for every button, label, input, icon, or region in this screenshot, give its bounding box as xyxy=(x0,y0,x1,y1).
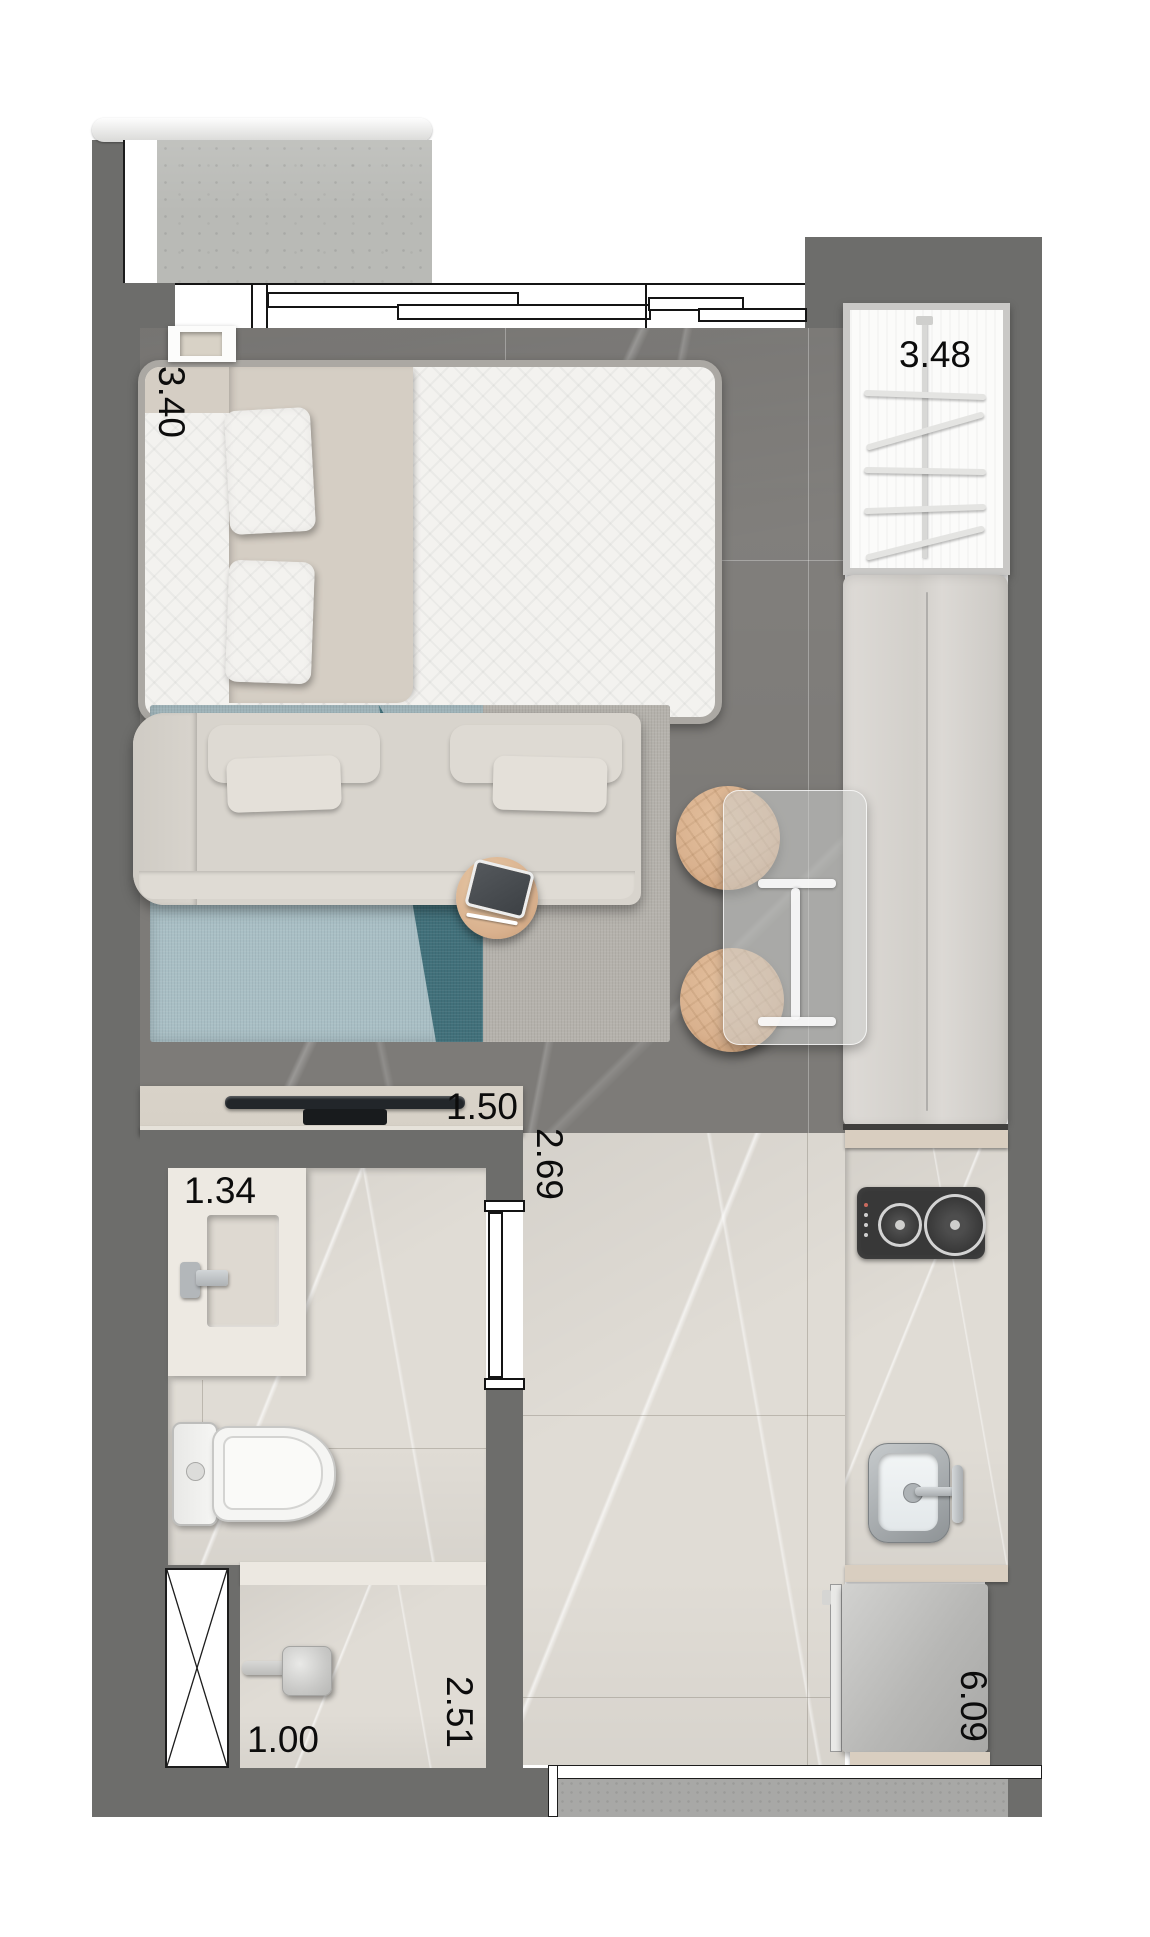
tv-stand xyxy=(303,1109,387,1125)
wall-living-bath xyxy=(140,1130,523,1168)
wall-top-left-stub xyxy=(92,283,175,328)
wardrobe-rail-clip xyxy=(916,316,933,325)
dimension-label-vanity-width: 1.34 xyxy=(184,1172,256,1209)
table-leg-stem xyxy=(791,888,800,1020)
window-band xyxy=(175,283,805,332)
dimension-label-hall-width: 2.69 xyxy=(531,1128,568,1200)
entry-lintel xyxy=(548,1765,1042,1779)
wall-right xyxy=(1008,237,1042,1817)
bench xyxy=(843,575,1008,1128)
tv xyxy=(225,1096,465,1109)
burner-large xyxy=(924,1194,986,1256)
sink-faucet-handle xyxy=(952,1465,963,1523)
cooktop-control-dot xyxy=(864,1233,868,1237)
sofa-front-edge xyxy=(139,871,635,899)
floor-plan: 3.40 3.48 1.50 2.69 1.34 1.00 2.51 6.09 xyxy=(0,0,1150,1937)
balcony-floor xyxy=(157,140,432,285)
hall-seam xyxy=(807,1133,808,1765)
pocket-door-panel xyxy=(488,1212,503,1378)
window-jamb xyxy=(251,285,268,330)
balcony-side-wall xyxy=(92,140,123,285)
window-sliding-panel xyxy=(397,304,651,320)
bed xyxy=(138,360,722,724)
window-divider xyxy=(645,285,647,330)
sofa-lumbar-pillow xyxy=(492,756,607,813)
dimension-label-tv-wall-width: 1.50 xyxy=(446,1088,518,1125)
wall-bath-left-fill xyxy=(140,1168,168,1768)
table-leg-bar xyxy=(758,879,836,888)
door-jamb xyxy=(484,1378,525,1390)
entry-jamb xyxy=(548,1765,558,1817)
burner-small xyxy=(878,1203,922,1247)
window-sliding-panel xyxy=(698,308,807,322)
bathroom-seam xyxy=(327,1448,486,1449)
shaft xyxy=(165,1568,229,1768)
glass-dining-table xyxy=(723,790,867,1045)
shower-head xyxy=(282,1646,332,1696)
dimension-label-bedroom-width: 3.40 xyxy=(153,366,190,438)
dimension-label-wardrobe-width: 3.48 xyxy=(899,336,971,373)
dimension-label-shower-width: 1.00 xyxy=(247,1721,319,1758)
counter-edge-bottom xyxy=(850,1752,990,1765)
fridge-door-edge xyxy=(830,1584,842,1752)
hanger xyxy=(864,467,986,475)
cooktop-control-dot xyxy=(864,1223,868,1227)
counter-edge-mid xyxy=(845,1565,1008,1582)
toilet-seat xyxy=(223,1436,323,1510)
hall-seam xyxy=(523,1415,845,1416)
toilet-flush-button xyxy=(186,1462,205,1481)
wall-niche xyxy=(168,326,236,362)
sofa xyxy=(133,713,641,905)
sofa-lumbar-pillow xyxy=(226,755,342,813)
tablet xyxy=(464,858,535,919)
entry-mat xyxy=(558,1779,1008,1817)
bench-seam xyxy=(926,592,928,1112)
bed-pillow xyxy=(225,560,315,685)
balcony-railing xyxy=(92,118,432,142)
door-jamb xyxy=(484,1200,525,1212)
cooktop-control-dot xyxy=(864,1203,868,1207)
side-table xyxy=(456,857,538,939)
wall-niche-inset xyxy=(180,332,222,356)
cooktop-control-dot xyxy=(864,1213,868,1217)
dimension-label-apartment-length: 6.09 xyxy=(955,1670,992,1742)
counter-edge-top xyxy=(845,1130,1008,1148)
vanity-faucet-spout xyxy=(196,1270,228,1286)
bed-pillow xyxy=(224,407,316,535)
wall-left xyxy=(92,283,140,1817)
shaft-x-icon xyxy=(167,1570,227,1766)
wall-bath-hall-lower xyxy=(486,1388,523,1768)
table-leg-bar xyxy=(758,1017,836,1026)
dimension-label-bathroom-length: 2.51 xyxy=(441,1676,478,1748)
wall-bottom xyxy=(92,1768,548,1817)
fridge-handle xyxy=(822,1590,831,1605)
cooktop xyxy=(857,1187,985,1259)
hall-floor xyxy=(523,1133,845,1765)
hall-seam xyxy=(523,1697,845,1698)
shower-threshold xyxy=(240,1562,486,1585)
toilet-bowl xyxy=(212,1426,336,1522)
balcony-planter xyxy=(123,140,161,285)
